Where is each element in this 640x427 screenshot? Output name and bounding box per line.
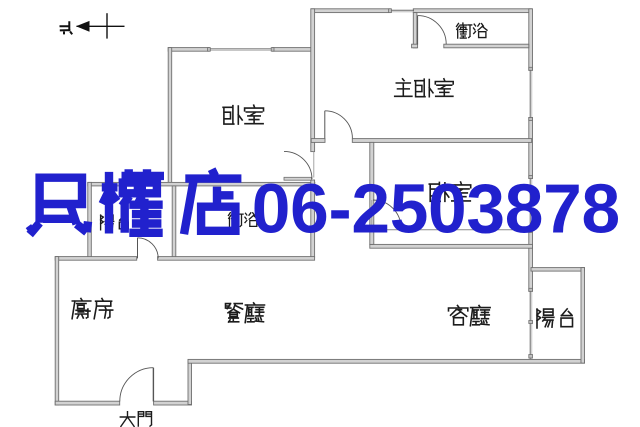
svg-text:06-2503878: 06-2503878 bbox=[252, 169, 620, 247]
